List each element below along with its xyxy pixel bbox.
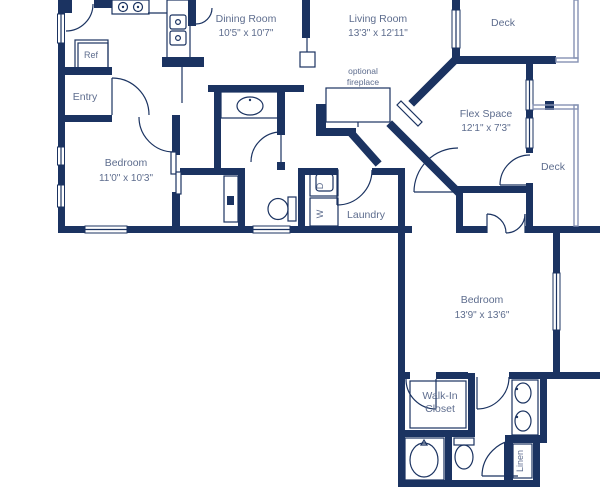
fireplace-icon <box>326 88 390 127</box>
label-flex-dims: 12'1" x 7'3" <box>461 123 511 134</box>
bathtub-icon <box>405 438 444 480</box>
wall <box>172 115 180 155</box>
toilet-icon <box>454 438 474 469</box>
column-icon <box>300 38 315 67</box>
bathroom-sink-icon <box>221 92 284 118</box>
wall <box>58 115 112 122</box>
window <box>58 14 65 43</box>
label-fireplace-line2: fireplace <box>347 77 379 87</box>
wall <box>398 372 410 379</box>
window <box>85 226 127 233</box>
wall <box>553 233 560 273</box>
label-bedroom2: Bedroom <box>461 294 504 306</box>
wall <box>302 0 310 38</box>
wall <box>398 226 405 480</box>
label-fireplace-line1: optional <box>348 66 378 76</box>
wall <box>238 168 245 226</box>
window <box>253 226 290 233</box>
label-walkin-line2: Closet <box>425 403 455 415</box>
wall <box>58 165 65 185</box>
floorplan: Dining Room 10'5" x 10'7" Living Room 13… <box>0 0 600 490</box>
open-door-leaf <box>397 101 422 126</box>
wall <box>58 226 85 233</box>
label-bedroom2-dims: 13'9" x 13'6" <box>455 310 510 321</box>
wall <box>526 62 533 80</box>
label-deck-right: Deck <box>541 161 566 173</box>
door-swing <box>112 78 149 115</box>
wall <box>180 168 238 175</box>
window <box>526 80 533 110</box>
wall <box>188 0 196 26</box>
room-labels: Dining Room 10'5" x 10'7" Living Room 13… <box>73 13 566 472</box>
walls <box>58 0 600 487</box>
wall <box>436 372 468 379</box>
sliding-door-icon <box>171 152 181 194</box>
label-flex-space: Flex Space <box>460 108 513 120</box>
door-swing <box>477 377 509 409</box>
label-deck-top: Deck <box>491 17 516 29</box>
window <box>58 147 65 165</box>
toilet-icon <box>268 197 296 221</box>
wall <box>504 443 513 480</box>
wall <box>58 43 65 147</box>
deck-rail <box>556 58 578 62</box>
wall <box>456 186 532 193</box>
wall <box>172 192 180 232</box>
double-door-swing <box>487 214 525 233</box>
wall <box>547 372 600 379</box>
label-bedroom1: Bedroom <box>105 157 148 169</box>
wall <box>290 226 405 233</box>
double-vanity-icon <box>512 380 538 435</box>
floorplan-canvas: Dining Room 10'5" x 10'7" Living Room 13… <box>0 0 600 490</box>
label-dryer: D <box>315 182 325 189</box>
wall <box>540 379 547 437</box>
door-swing <box>337 170 372 205</box>
deck-rails <box>533 0 578 226</box>
wall <box>526 110 533 118</box>
wall <box>533 443 540 480</box>
label-living-room: Living Room <box>349 13 408 25</box>
stove-icon <box>112 0 149 14</box>
wall <box>277 162 285 170</box>
wall <box>214 92 221 168</box>
wall <box>525 226 600 233</box>
label-bedroom1-dims: 11'0" x 10'3" <box>99 173 154 184</box>
deck-rail <box>574 0 578 58</box>
label-ref: Ref <box>84 50 99 60</box>
wall <box>58 0 65 14</box>
window <box>452 10 460 48</box>
wall <box>505 435 547 443</box>
label-dining-room: Dining Room <box>216 13 277 25</box>
wall <box>208 85 304 92</box>
wall <box>452 56 556 64</box>
wall <box>398 430 475 437</box>
wall <box>445 437 452 480</box>
label-entry: Entry <box>73 91 98 103</box>
wall <box>94 0 112 8</box>
door-swing <box>139 117 174 152</box>
wall <box>553 330 560 378</box>
label-laundry: Laundry <box>347 209 386 221</box>
door-swing <box>251 132 281 162</box>
deck-rail <box>574 105 578 226</box>
wall <box>58 67 112 75</box>
wall <box>509 372 547 379</box>
wall <box>452 0 460 10</box>
doors <box>66 4 530 476</box>
wall <box>398 168 405 233</box>
deck-rail <box>533 105 578 109</box>
window <box>553 273 560 330</box>
label-walkin-line1: Walk-In <box>422 390 457 402</box>
wall <box>526 148 533 153</box>
kitchen-sink-icon <box>148 0 212 103</box>
label-washer: W <box>315 209 325 218</box>
wall <box>127 226 253 233</box>
wall <box>64 0 72 13</box>
label-dining-dims: 10'5" x 10'7" <box>219 28 274 39</box>
window <box>526 118 533 148</box>
wall <box>414 59 456 101</box>
label-linen: Linen <box>515 450 525 472</box>
label-living-dims: 13'3" x 12'11" <box>348 28 408 39</box>
closet-door-icon <box>224 176 238 222</box>
wall <box>398 480 540 487</box>
wall <box>462 226 487 233</box>
door-swing <box>500 155 530 185</box>
window <box>58 185 65 207</box>
wall <box>298 168 305 226</box>
wall <box>468 373 475 437</box>
wall <box>352 134 376 161</box>
